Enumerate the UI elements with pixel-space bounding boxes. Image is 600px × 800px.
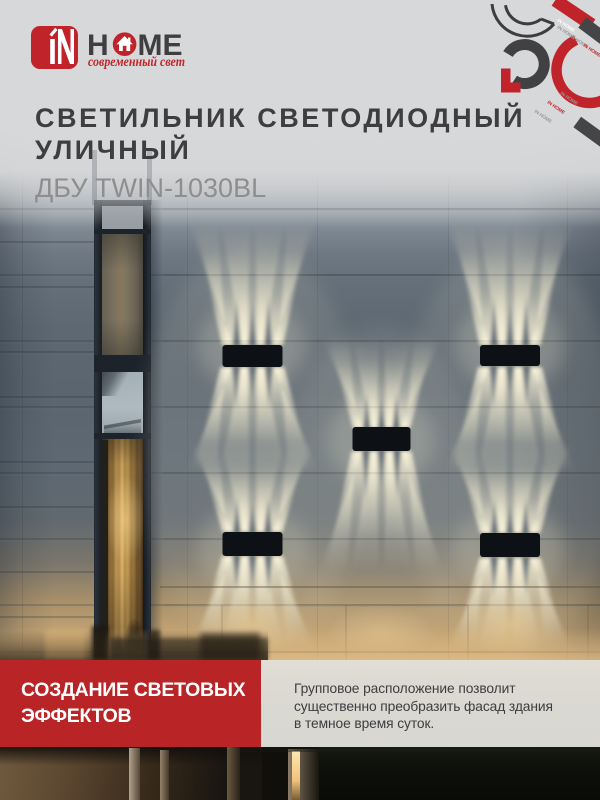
svg-text:IN HOME: IN HOME: [582, 43, 600, 58]
svg-text:IN HOME: IN HOME: [546, 100, 565, 115]
svg-text:современный свет: современный свет: [88, 55, 185, 70]
svg-text:IN HOME: IN HOME: [533, 109, 552, 124]
